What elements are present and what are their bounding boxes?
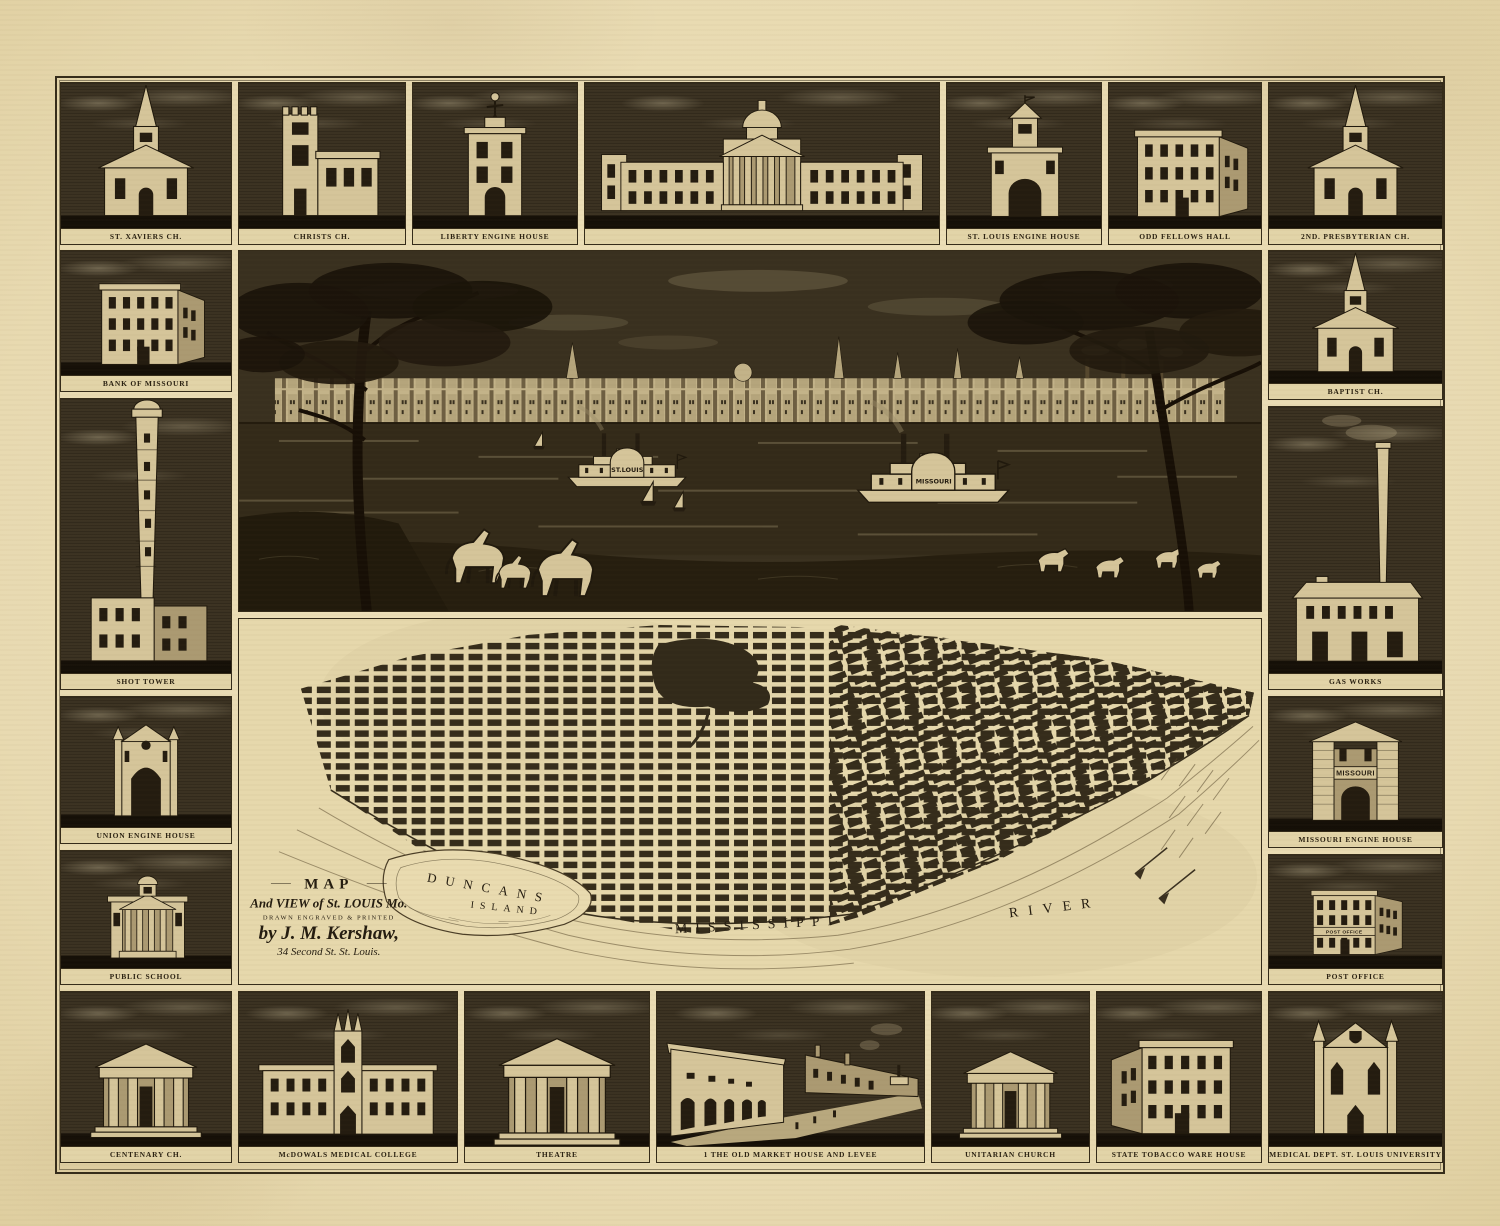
vignette-label-strip: SHOT TOWER — [61, 673, 231, 689]
theatre-engraving — [465, 992, 649, 1146]
vignette-label: BANK OF MISSOURI — [103, 379, 189, 388]
vignette-medical-dept-st-louis-university: MEDICAL DEPT. ST. LOUIS UNIVERSITY — [1268, 991, 1443, 1163]
cartouche-author: by J. M. Kershaw, — [259, 923, 399, 944]
vignette-label-strip: STATE TOBACCO WARE HOUSE — [1097, 1146, 1261, 1162]
vignette-label: PUBLIC SCHOOL — [110, 972, 183, 981]
christs-church-engraving — [239, 83, 405, 228]
vignette-post-office: POST OFFICE POST OFFICE — [1268, 854, 1443, 985]
vignette-missouri-engine-house: MISSOURI MISSOURI ENGINE HOUSE — [1268, 696, 1443, 848]
medical-dept-engraving — [1269, 992, 1442, 1146]
vignette-union-engine-house: UNION ENGINE HOUSE — [60, 696, 232, 844]
vignette-label-strip: GAS WORKS — [1269, 673, 1442, 689]
vignette-label: 2ND. PRESBYTERIAN CH. — [1301, 232, 1410, 241]
court-house-engraving — [585, 83, 939, 228]
vignette-label-strip: 2ND. PRESBYTERIAN CH. — [1269, 228, 1442, 244]
vignette-label: 1 THE OLD MARKET HOUSE AND LEVEE — [704, 1150, 878, 1159]
vignette-baptist-church: BAPTIST CH. — [1268, 250, 1443, 400]
gas-works-engraving — [1269, 407, 1442, 673]
vignette-label-strip: PUBLIC SCHOOL — [61, 968, 231, 984]
vignette-court-house — [584, 82, 940, 245]
vignette-liberty-engine-house: LIBERTY ENGINE HOUSE — [412, 82, 578, 245]
public-school-engraving — [61, 851, 231, 968]
cartouche-address: 34 Second St. St. Louis. — [276, 946, 380, 958]
bank-of-missouri-engraving — [61, 251, 231, 375]
vignette-old-market-house-and-levee: 1 THE OLD MARKET HOUSE AND LEVEE — [656, 991, 925, 1163]
vignette-2nd-presbyterian-church: 2ND. PRESBYTERIAN CH. — [1268, 82, 1443, 245]
mcdowals-medical-college-engraving — [239, 992, 457, 1146]
vignette-label-strip: CHRISTS CH. — [239, 228, 405, 244]
post-office-facade-inscription: POST OFFICE — [1326, 929, 1363, 935]
missouri-facade-inscription: MISSOURI — [1336, 770, 1375, 778]
missouri-engine-house-engraving: MISSOURI — [1269, 697, 1442, 831]
vignette-christs-church: CHRISTS CH. — [238, 82, 406, 245]
vignette-centenary-church: CENTENARY CH. — [60, 991, 232, 1163]
vignette-st-louis-engine-house: ST. LOUIS ENGINE HOUSE — [946, 82, 1102, 245]
vignette-label: ST. XAVIERS CH. — [110, 232, 182, 241]
2nd-presbyterian-church-engraving — [1269, 83, 1442, 228]
vignette-gas-works: GAS WORKS — [1268, 406, 1443, 690]
centenary-church-engraving — [61, 992, 231, 1146]
vignette-label-strip: UNION ENGINE HOUSE — [61, 827, 231, 843]
vignette-label-strip: LIBERTY ENGINE HOUSE — [413, 228, 577, 244]
vignette-label-strip: 1 THE OLD MARKET HOUSE AND LEVEE — [657, 1146, 924, 1162]
vignette-label-strip: BANK OF MISSOURI — [61, 375, 231, 391]
vignette-label-strip: ST. LOUIS ENGINE HOUSE — [947, 228, 1101, 244]
city-map: MAP And VIEW of St. LOUIS Mo. DRAWN ENGR… — [238, 618, 1262, 985]
vignette-label-strip: MEDICAL DEPT. ST. LOUIS UNIVERSITY — [1269, 1146, 1442, 1162]
vignette-state-tobacco-warehouse: STATE TOBACCO WARE HOUSE — [1096, 991, 1262, 1163]
vignette-shot-tower: SHOT TOWER — [60, 398, 232, 690]
vignette-label-strip: CENTENARY CH. — [61, 1146, 231, 1162]
vignette-label-strip: ODD FELLOWS HALL — [1109, 228, 1261, 244]
st-louis-engine-house-engraving — [947, 83, 1101, 228]
vignette-label: UNITARIAN CHURCH — [965, 1150, 1056, 1159]
vignette-label-strip: MISSOURI ENGINE HOUSE — [1269, 831, 1442, 847]
vignette-label: THEATRE — [536, 1150, 578, 1159]
vignette-label-strip: McDOWALS MEDICAL COLLEGE — [239, 1146, 457, 1162]
panorama-river-view: ST.LOUIS MISSOURI — [238, 250, 1262, 612]
vignette-label: MISSOURI ENGINE HOUSE — [1298, 835, 1412, 844]
vignette-label: BAPTIST CH. — [1328, 387, 1384, 396]
vignette-label: SHOT TOWER — [116, 677, 175, 686]
vignette-public-school: PUBLIC SCHOOL — [60, 850, 232, 985]
vignette-label-strip: POST OFFICE — [1269, 968, 1442, 984]
shot-tower-engraving — [61, 399, 231, 673]
state-tobacco-warehouse-engraving — [1097, 992, 1261, 1146]
baptist-church-engraving — [1269, 251, 1442, 383]
vignette-label-strip: BAPTIST CH. — [1269, 383, 1442, 399]
cartouche-title: MAP — [304, 877, 353, 893]
post-office-engraving: POST OFFICE — [1269, 855, 1442, 968]
vignette-label: CHRISTS CH. — [294, 232, 351, 241]
st-xaviers-church-engraving — [61, 83, 231, 228]
vignette-label: LIBERTY ENGINE HOUSE — [441, 232, 550, 241]
vignette-mcdowals-medical-college: McDOWALS MEDICAL COLLEGE — [238, 991, 458, 1163]
vignette-unitarian-church: UNITARIAN CHURCH — [931, 991, 1090, 1163]
vignette-label: GAS WORKS — [1329, 677, 1382, 686]
vignette-label: STATE TOBACCO WARE HOUSE — [1112, 1150, 1247, 1159]
vignette-label-strip — [585, 228, 939, 244]
vignette-label: McDOWALS MEDICAL COLLEGE — [279, 1150, 418, 1159]
vignette-odd-fellows-hall: ODD FELLOWS HALL — [1108, 82, 1262, 245]
odd-fellows-hall-engraving — [1109, 83, 1261, 228]
unitarian-church-engraving — [932, 992, 1089, 1146]
vignette-label-strip: UNITARIAN CHURCH — [932, 1146, 1089, 1162]
steamboat-name: MISSOURI — [916, 478, 952, 486]
vignette-label: CENTENARY CH. — [110, 1150, 182, 1159]
old-market-house-engraving — [657, 992, 924, 1146]
vignette-label-strip: THEATRE — [465, 1146, 649, 1162]
cartouche-subtitle: And VIEW of St. LOUIS Mo. — [249, 895, 407, 910]
cartouche-credits: DRAWN ENGRAVED & PRINTED — [263, 914, 395, 921]
steamboat-name: ST.LOUIS — [611, 466, 644, 474]
vignette-label: ODD FELLOWS HALL — [1139, 232, 1231, 241]
vignette-st-xaviers-church: ST. XAVIERS CH. — [60, 82, 232, 245]
vignette-label: UNION ENGINE HOUSE — [97, 831, 196, 840]
vignette-bank-of-missouri: BANK OF MISSOURI — [60, 250, 232, 392]
vignette-label: POST OFFICE — [1326, 972, 1384, 981]
vignette-theatre: THEATRE — [464, 991, 650, 1163]
union-engine-house-engraving — [61, 697, 231, 827]
vignette-label: ST. LOUIS ENGINE HOUSE — [968, 232, 1081, 241]
vignette-label-strip: ST. XAVIERS CH. — [61, 228, 231, 244]
antique-map-page: { "colors": { "paper": "#e8dab1", "ink":… — [0, 0, 1500, 1226]
vignette-label: MEDICAL DEPT. ST. LOUIS UNIVERSITY — [1269, 1150, 1442, 1159]
liberty-engine-house-engraving — [413, 83, 577, 228]
